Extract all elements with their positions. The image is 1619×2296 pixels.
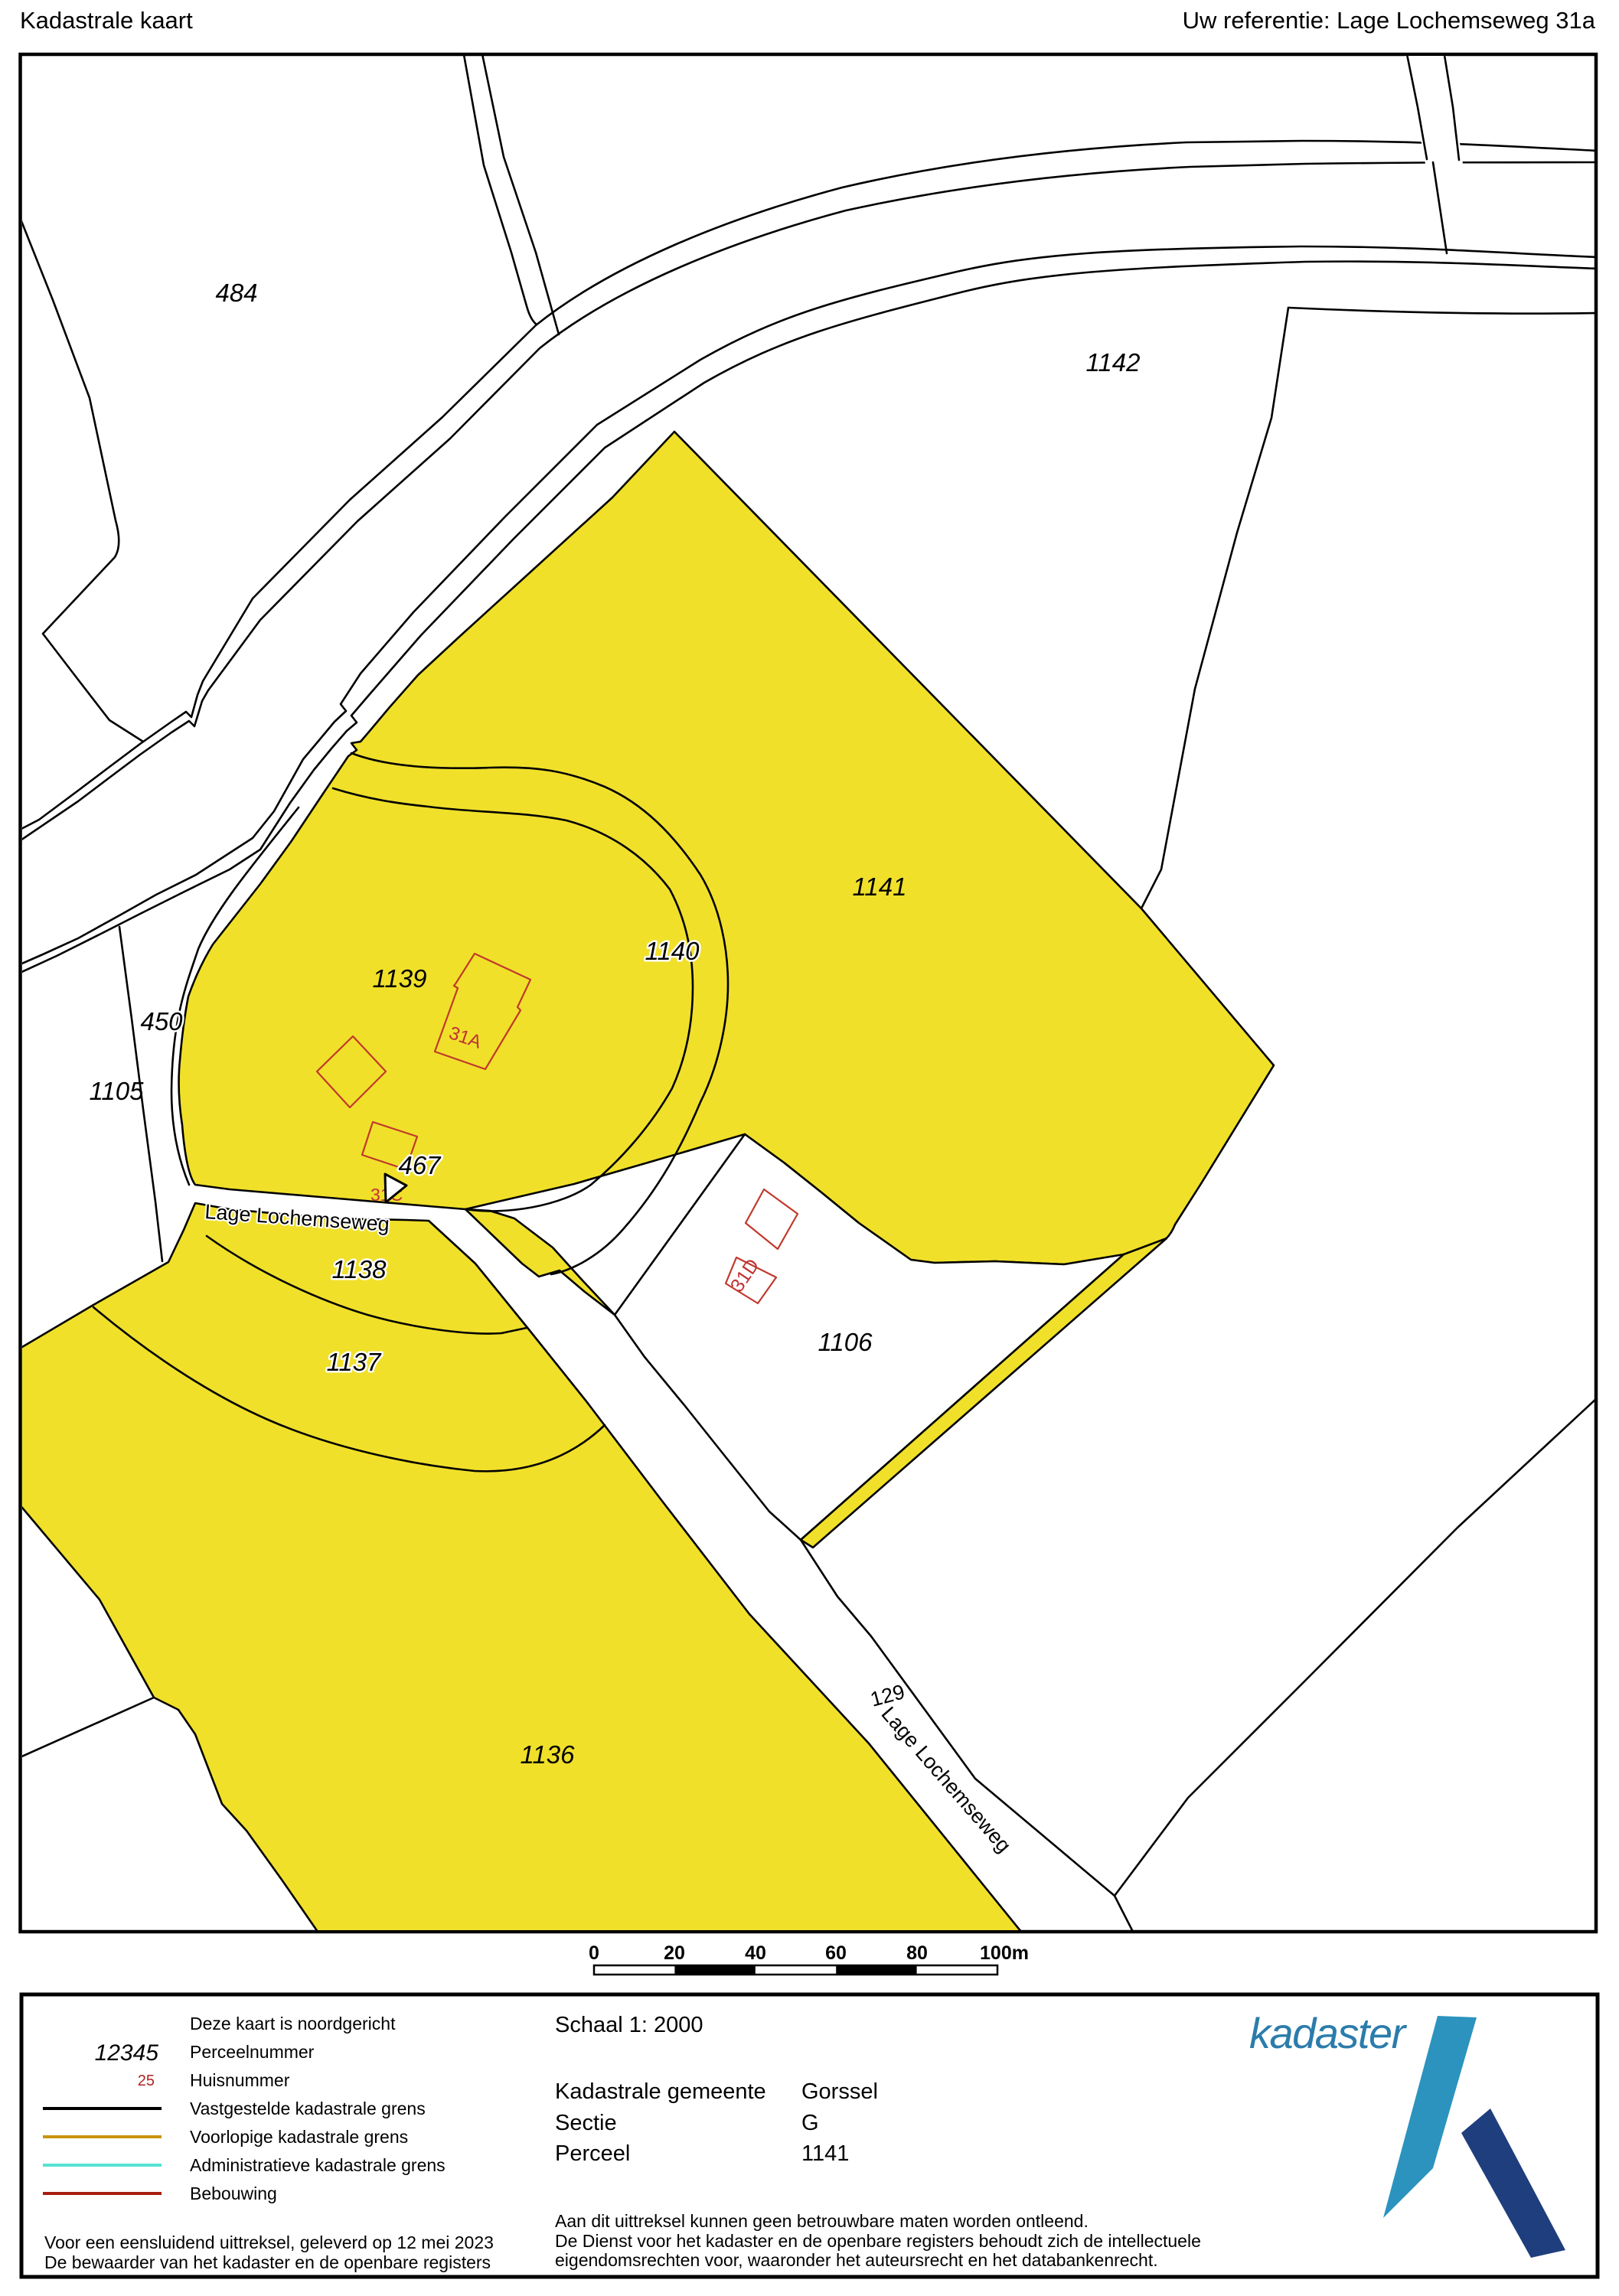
svg-text:100m: 100m xyxy=(980,1942,1029,1964)
svg-text:450: 450 xyxy=(140,1007,183,1035)
svg-text:60: 60 xyxy=(825,1942,847,1964)
svg-text:eigendomsrechten voor, waarond: eigendomsrechten voor, waaronder het aut… xyxy=(555,2250,1158,2270)
svg-text:Kadastrale gemeente: Kadastrale gemeente xyxy=(555,2079,766,2104)
svg-text:1138: 1138 xyxy=(332,1255,387,1283)
svg-text:484: 484 xyxy=(215,279,257,307)
svg-text:Kadastrale kaart: Kadastrale kaart xyxy=(20,7,193,34)
svg-text:Voorlopige kadastrale grens: Voorlopige kadastrale grens xyxy=(190,2127,408,2147)
svg-text:De bewaarder van het kadaster: De bewaarder van het kadaster en de open… xyxy=(44,2252,491,2272)
svg-text:20: 20 xyxy=(664,1942,685,1964)
svg-text:40: 40 xyxy=(745,1942,766,1964)
svg-text:1139: 1139 xyxy=(373,964,427,993)
svg-text:467: 467 xyxy=(398,1151,442,1179)
svg-text:Gorssel: Gorssel xyxy=(801,2079,878,2104)
svg-text:Uw referentie: Lage Lochemsewe: Uw referentie: Lage Lochemseweg 31a xyxy=(1183,7,1596,34)
svg-text:1137: 1137 xyxy=(327,1348,383,1376)
svg-text:80: 80 xyxy=(906,1942,928,1964)
svg-text:Perceel: Perceel xyxy=(555,2141,630,2166)
svg-text:1142: 1142 xyxy=(1086,348,1141,377)
svg-text:kadaster: kadaster xyxy=(1249,2009,1408,2057)
svg-text:1140: 1140 xyxy=(645,937,700,965)
svg-text:Bebouwing: Bebouwing xyxy=(190,2183,277,2203)
svg-text:1141: 1141 xyxy=(853,872,907,901)
svg-text:Perceelnummer: Perceelnummer xyxy=(190,2042,315,2062)
svg-text:12345: 12345 xyxy=(95,2040,159,2066)
svg-text:1106: 1106 xyxy=(818,1328,873,1356)
svg-text:Vastgestelde kadastrale grens: Vastgestelde kadastrale grens xyxy=(190,2099,426,2118)
svg-text:Huisnummer: Huisnummer xyxy=(190,2070,290,2090)
svg-text:Sectie: Sectie xyxy=(555,2111,617,2135)
svg-text:Voor een eensluidend uittrekse: Voor een eensluidend uittreksel, gelever… xyxy=(44,2232,494,2252)
svg-text:Administratieve kadastrale gre: Administratieve kadastrale grens xyxy=(190,2155,446,2175)
svg-text:25: 25 xyxy=(138,2073,155,2089)
svg-text:Aan dit uittreksel kunnen geen: Aan dit uittreksel kunnen geen betrouwba… xyxy=(555,2211,1089,2231)
svg-text:G: G xyxy=(801,2111,819,2135)
svg-text:1105: 1105 xyxy=(90,1077,145,1105)
svg-text:1136: 1136 xyxy=(521,1740,576,1769)
svg-text:1141: 1141 xyxy=(801,2141,849,2166)
svg-text:Schaal 1: 2000: Schaal 1: 2000 xyxy=(555,2013,703,2037)
svg-text:De Dienst voor het kadaster en: De Dienst voor het kadaster en de openba… xyxy=(555,2231,1201,2251)
svg-text:0: 0 xyxy=(589,1942,599,1964)
svg-text:Deze kaart is noordgericht: Deze kaart is noordgericht xyxy=(190,2014,396,2033)
